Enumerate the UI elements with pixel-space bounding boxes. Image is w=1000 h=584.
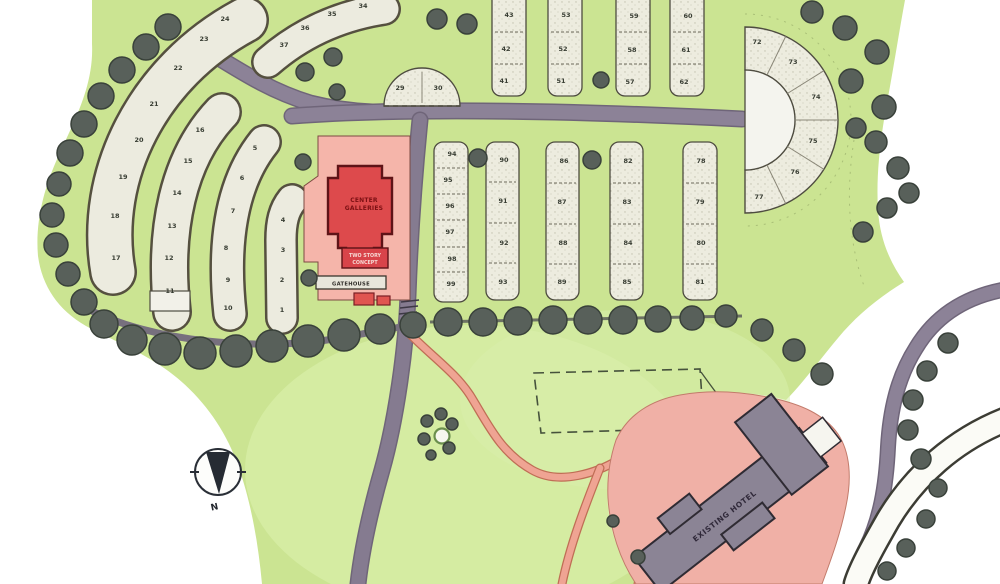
- lot-number-22: 22: [173, 64, 182, 72]
- lot-number-15: 15: [183, 157, 193, 165]
- tree-icon: [435, 408, 447, 420]
- compass-rose: N: [190, 449, 246, 514]
- tree-icon: [292, 325, 324, 357]
- lot-number-57: 57: [625, 78, 634, 86]
- lot-number-52: 52: [558, 45, 567, 53]
- tree-icon: [57, 140, 83, 166]
- lot-number-62: 62: [679, 78, 688, 86]
- tree-icon: [751, 319, 773, 341]
- tree-icon: [680, 306, 704, 330]
- tree-icon: [839, 69, 863, 93]
- lot-number-80: 80: [696, 239, 706, 247]
- tree-icon: [593, 72, 609, 88]
- lot-number-14: 14: [172, 189, 182, 197]
- site-plan-map: CENTER GALLERIES TWO STORY CONCEPT GATEH…: [0, 0, 1000, 584]
- gatehouse-label: GATEHOUSE: [332, 282, 370, 288]
- lot-number-88: 88: [558, 239, 568, 247]
- tree-icon: [469, 308, 497, 336]
- tree-icon: [426, 450, 436, 460]
- lot-strip: [683, 142, 717, 300]
- tree-icon: [56, 262, 80, 286]
- lot-number-92: 92: [499, 239, 508, 247]
- lot-number-42: 42: [501, 45, 510, 53]
- lot-number-17: 17: [111, 254, 120, 262]
- compass-label: N: [210, 502, 219, 513]
- lot-number-82: 82: [623, 157, 632, 165]
- lot-number-74: 74: [811, 93, 821, 101]
- tree-icon: [443, 442, 455, 454]
- site-plan-page: CENTER GALLERIES TWO STORY CONCEPT GATEH…: [0, 0, 1000, 584]
- tree-icon: [878, 562, 896, 580]
- tree-icon: [865, 131, 887, 153]
- lot-number-7: 7: [231, 207, 236, 215]
- tree-icon: [90, 310, 118, 338]
- gatehouse-kiosk: [354, 293, 374, 305]
- lot-number-84: 84: [623, 239, 633, 247]
- lot-number-29: 29: [395, 84, 405, 92]
- lot-number-76: 76: [790, 168, 800, 176]
- tree-icon: [609, 306, 637, 334]
- lot-number-51: 51: [556, 77, 566, 85]
- tree-icon: [929, 479, 947, 497]
- tree-icon: [324, 48, 342, 66]
- tree-icon: [715, 305, 737, 327]
- lot-number-16: 16: [195, 126, 205, 134]
- lot-number-60: 60: [683, 12, 693, 20]
- lot-number-23: 23: [199, 35, 208, 43]
- lot-number-94: 94: [447, 150, 457, 158]
- lot-number-96: 96: [445, 202, 455, 210]
- tree-icon: [400, 312, 426, 338]
- lot-number-91: 91: [498, 197, 508, 205]
- tree-icon: [903, 390, 923, 410]
- lot-number-37: 37: [279, 41, 288, 49]
- tree-icon: [365, 314, 395, 344]
- lot-strip: [486, 142, 519, 300]
- lot-number-21: 21: [149, 100, 159, 108]
- main-road: [292, 111, 742, 119]
- tree-icon: [631, 550, 645, 564]
- community-center: CENTER GALLERIES TWO STORY CONCEPT GATEH…: [304, 136, 410, 305]
- tree-icon: [155, 14, 181, 40]
- tree-icon: [872, 95, 896, 119]
- lot-number-83: 83: [622, 198, 631, 206]
- lot-number-6: 6: [240, 174, 245, 182]
- lot-number-90: 90: [499, 156, 509, 164]
- lot-number-18: 18: [110, 212, 120, 220]
- tree-icon: [877, 198, 897, 218]
- lot-number-86: 86: [559, 157, 569, 165]
- lot-number-2: 2: [280, 276, 285, 284]
- community-center-sub-2: CONCEPT: [352, 260, 378, 266]
- tree-icon: [846, 118, 866, 138]
- lot-number-58: 58: [627, 46, 637, 54]
- tree-icon: [295, 154, 311, 170]
- lot-number-3: 3: [281, 246, 286, 254]
- lot-number-78: 78: [696, 157, 706, 165]
- lot-number-77: 77: [754, 193, 763, 201]
- tree-icon: [911, 449, 931, 469]
- tree-icon: [504, 307, 532, 335]
- lot-number-95: 95: [443, 176, 453, 184]
- tree-icon: [434, 308, 462, 336]
- lot-number-93: 93: [498, 278, 507, 286]
- lot-strip: [610, 142, 643, 300]
- lot-number-81: 81: [695, 278, 705, 286]
- tree-icon: [149, 333, 181, 365]
- lot-number-20: 20: [134, 136, 144, 144]
- tree-icon: [811, 363, 833, 385]
- lot-strip: [434, 142, 468, 302]
- tree-icon: [71, 111, 97, 137]
- tree-icon: [865, 40, 889, 64]
- tree-icon: [469, 149, 487, 167]
- lot-number-79: 79: [695, 198, 705, 206]
- tree-icon: [539, 306, 567, 334]
- tree-icon: [897, 539, 915, 557]
- lot-number-59: 59: [629, 12, 639, 20]
- tree-icon: [801, 1, 823, 23]
- lot-number-19: 19: [118, 173, 128, 181]
- gatehouse-kiosk-2: [377, 296, 390, 305]
- lot-number-30: 30: [433, 84, 443, 92]
- tree-icon: [71, 289, 97, 315]
- tree-icon: [40, 203, 64, 227]
- tree-icon: [607, 515, 619, 527]
- tree-icon: [301, 270, 317, 286]
- tree-icon: [133, 34, 159, 60]
- tree-icon: [184, 337, 216, 369]
- tree-icon: [418, 433, 430, 445]
- tree-icon: [329, 84, 345, 100]
- lot-number-1: 1: [280, 306, 285, 314]
- lot-number-4: 4: [281, 216, 286, 224]
- tree-icon: [109, 57, 135, 83]
- lot-number-5: 5: [253, 144, 258, 152]
- tree-icon: [887, 157, 909, 179]
- lot-number-97: 97: [445, 228, 454, 236]
- tree-icon: [446, 418, 458, 430]
- lot-number-43: 43: [504, 11, 513, 19]
- lot-number-41: 41: [499, 77, 509, 85]
- tree-icon: [645, 306, 671, 332]
- gazebo: [435, 429, 450, 444]
- tree-icon: [220, 335, 252, 367]
- lot-number-99: 99: [446, 280, 456, 288]
- tree-icon: [899, 183, 919, 203]
- tree-icon: [917, 510, 935, 528]
- tree-icon: [44, 233, 68, 257]
- tree-icon: [457, 14, 477, 34]
- lot-number-11: 11: [165, 287, 175, 295]
- lot-number-35: 35: [327, 10, 337, 18]
- tree-icon: [853, 222, 873, 242]
- tree-icon: [833, 16, 857, 40]
- tree-icon: [917, 361, 937, 381]
- lot-number-72: 72: [752, 38, 761, 46]
- lot-number-34: 34: [358, 2, 368, 10]
- tree-icon: [783, 339, 805, 361]
- tree-icon: [583, 151, 601, 169]
- lot-number-12: 12: [164, 254, 173, 262]
- community-center-label-1: CENTER: [350, 197, 378, 204]
- lot-number-89: 89: [557, 278, 567, 286]
- tree-icon: [421, 415, 433, 427]
- lot-number-10: 10: [223, 304, 233, 312]
- lot-number-9: 9: [226, 276, 231, 284]
- community-center-label-2: GALLERIES: [345, 205, 383, 212]
- tree-icon: [47, 172, 71, 196]
- tree-icon: [427, 9, 447, 29]
- lot-number-87: 87: [557, 198, 566, 206]
- tree-icon: [117, 325, 147, 355]
- tree-icon: [328, 319, 360, 351]
- community-center-sub-1: TWO STORY: [349, 253, 382, 259]
- tree-icon: [296, 63, 314, 81]
- tree-icon: [938, 333, 958, 353]
- lot-number-85: 85: [622, 278, 632, 286]
- lot-number-24: 24: [220, 15, 230, 23]
- lot-number-75: 75: [808, 137, 818, 145]
- tree-icon: [256, 330, 288, 362]
- tree-icon: [88, 83, 114, 109]
- lot-number-53: 53: [561, 11, 570, 19]
- lot-strip: [546, 142, 579, 300]
- lot-number-61: 61: [681, 46, 691, 54]
- lot-number-36: 36: [300, 24, 310, 32]
- tree-icon: [898, 420, 918, 440]
- lot-number-8: 8: [224, 244, 229, 252]
- lot-number-98: 98: [447, 255, 457, 263]
- lot-number-13: 13: [167, 222, 176, 230]
- tree-icon: [574, 306, 602, 334]
- lot-number-73: 73: [788, 58, 797, 66]
